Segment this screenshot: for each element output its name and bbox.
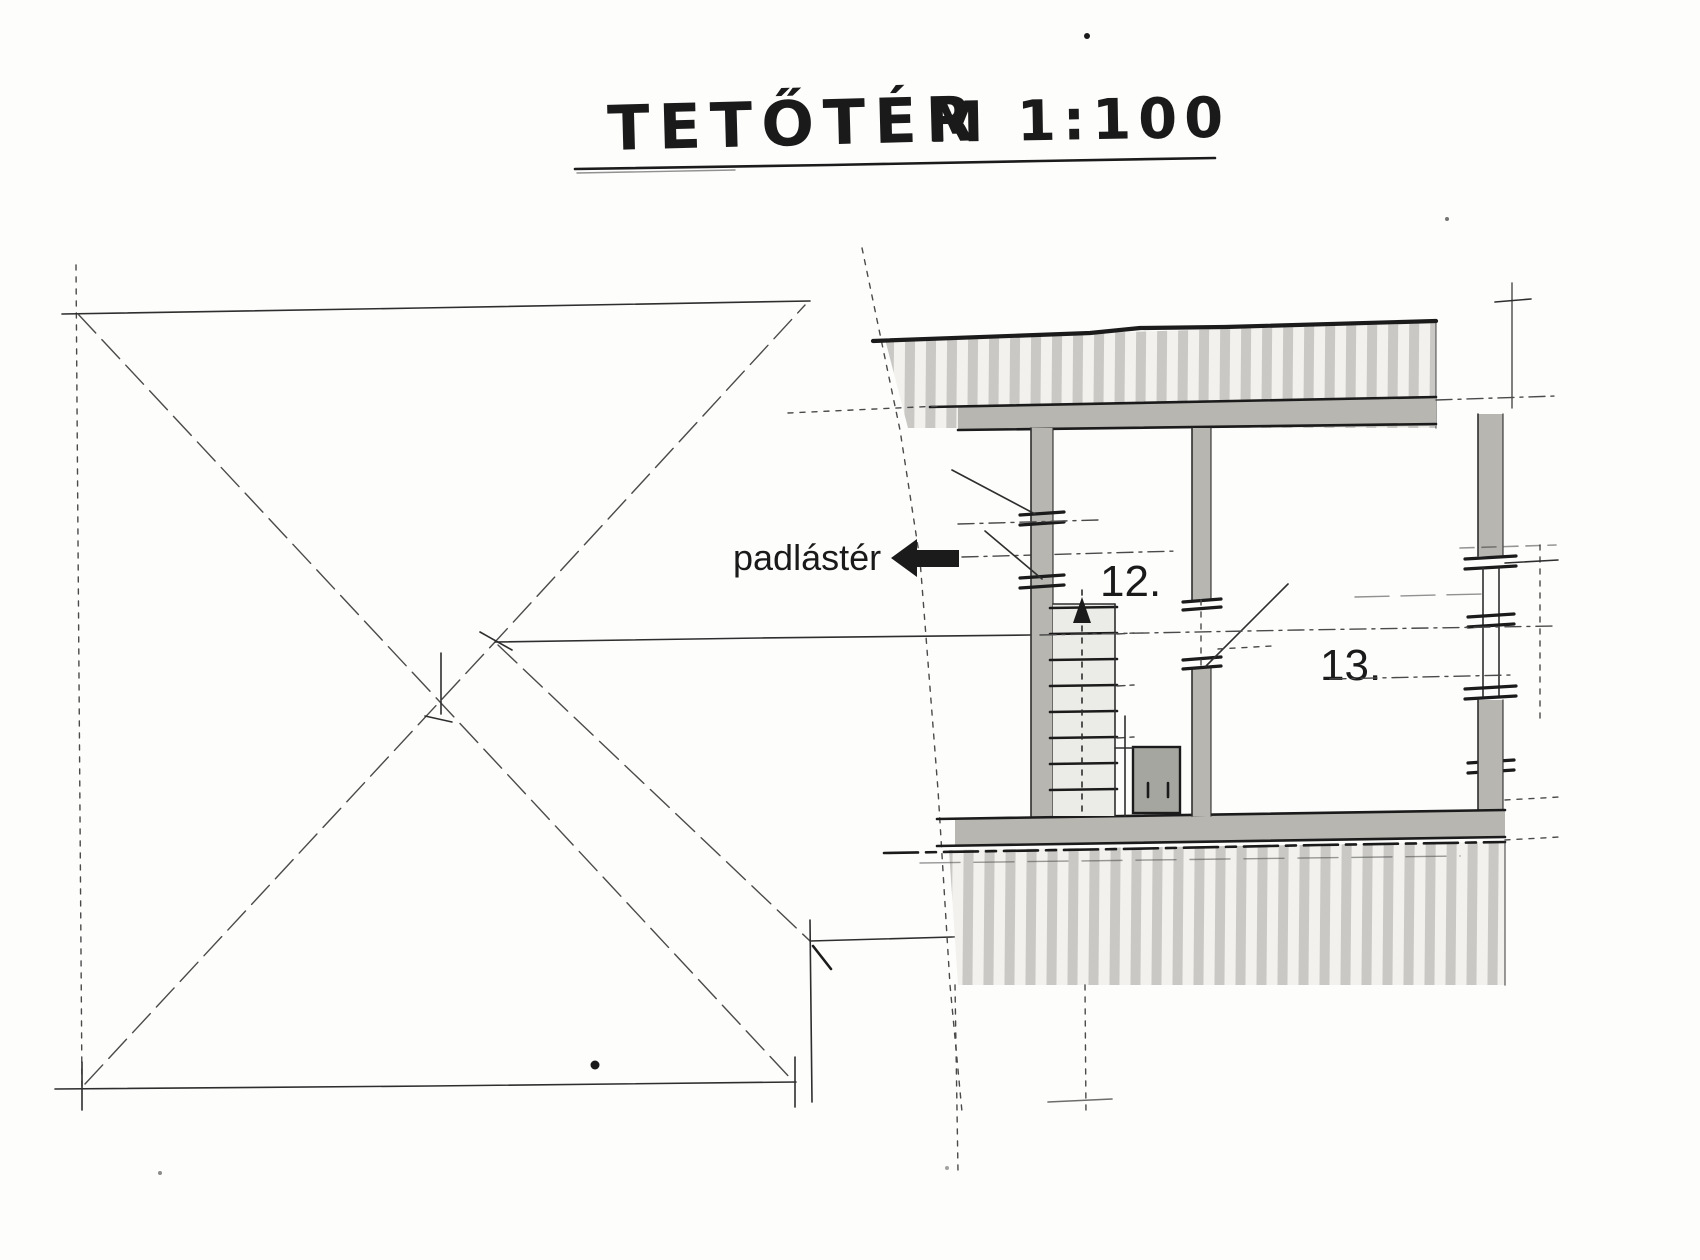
attic-arrow-icon xyxy=(891,539,959,577)
room-label-13: 13. xyxy=(1320,641,1381,690)
roof-plan-left xyxy=(55,265,1030,1110)
room-label-12: 12. xyxy=(1100,557,1161,606)
ridge-node2-tick xyxy=(480,632,512,650)
paper-specks xyxy=(158,33,1449,1175)
room13-long-dash-line xyxy=(1040,626,1556,635)
inner-corner-hook xyxy=(813,946,831,969)
attic-floor-plan-canvas: TETŐTÉR M 1:100 padl xyxy=(0,0,1700,1260)
roof-hip-diagonal-tl-br xyxy=(78,314,792,1080)
title-underline-echo xyxy=(577,170,735,173)
below-band-vertical-1 xyxy=(955,985,958,1172)
right-top-rail-tick xyxy=(1495,299,1531,302)
right-top-dash xyxy=(1436,396,1556,400)
lower-roof-band xyxy=(884,842,1505,985)
closet xyxy=(1115,716,1180,816)
lower-roof-band-fill xyxy=(949,842,1505,985)
attic-label: padlástér xyxy=(733,537,881,578)
below-band-vertical-2 xyxy=(1085,985,1086,1116)
closet-fill xyxy=(1133,747,1180,813)
exterior-wall-left xyxy=(952,428,1064,818)
roof-top-eave-line xyxy=(62,301,810,314)
stairs xyxy=(1050,590,1134,816)
ridge-node-tick-small xyxy=(425,716,452,722)
roof-left-edge-line xyxy=(76,265,82,1090)
roof-ridge-line xyxy=(495,635,1030,642)
roof-valley-line xyxy=(498,645,810,941)
right-window-dim-tick-2 xyxy=(1460,545,1556,548)
title-block: TETŐTÉR M 1:100 xyxy=(575,82,1231,173)
inner-corner-horizontal xyxy=(810,937,952,941)
below-band-tick xyxy=(1048,1099,1112,1102)
inner-corner-vertical xyxy=(810,920,812,1102)
drawing-sheet: TETŐTÉR M 1:100 padl xyxy=(0,0,1700,1260)
partition-wall xyxy=(1183,428,1288,816)
bottom-wall-right-tick-2 xyxy=(1505,837,1560,840)
bottom-wall-right-tick-1 xyxy=(1505,797,1560,800)
door-swing-line xyxy=(1206,584,1288,666)
right-window-dim-tick-1 xyxy=(1505,560,1558,563)
roof-bottom-eave-line xyxy=(55,1082,796,1089)
room13-dash-line-2 xyxy=(1355,594,1482,597)
exterior-wall-right xyxy=(1465,414,1516,816)
page-title-scale: M 1:100 xyxy=(927,86,1231,156)
window-leader-1 xyxy=(952,470,1035,514)
roof-hip-diagonal-bl-tr xyxy=(85,305,805,1084)
pencil-dot xyxy=(591,1061,600,1070)
exterior-wall-bottom xyxy=(937,810,1505,846)
